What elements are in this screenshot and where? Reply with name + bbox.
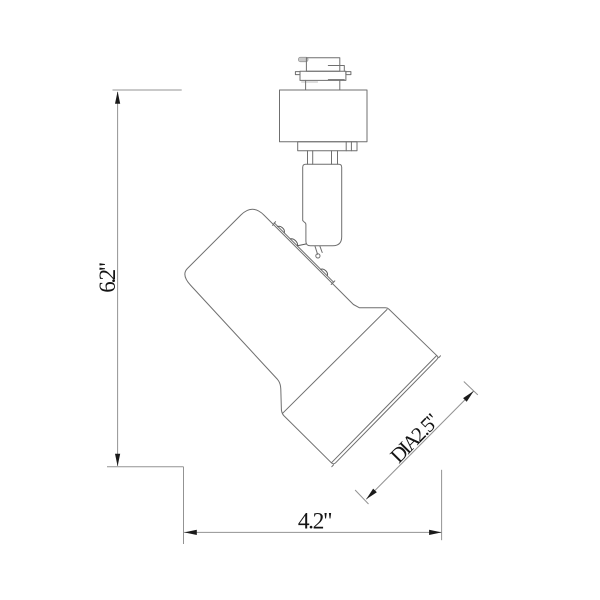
svg-text:4.2": 4.2" [298, 509, 332, 535]
svg-text:6.2": 6.2" [95, 263, 120, 293]
